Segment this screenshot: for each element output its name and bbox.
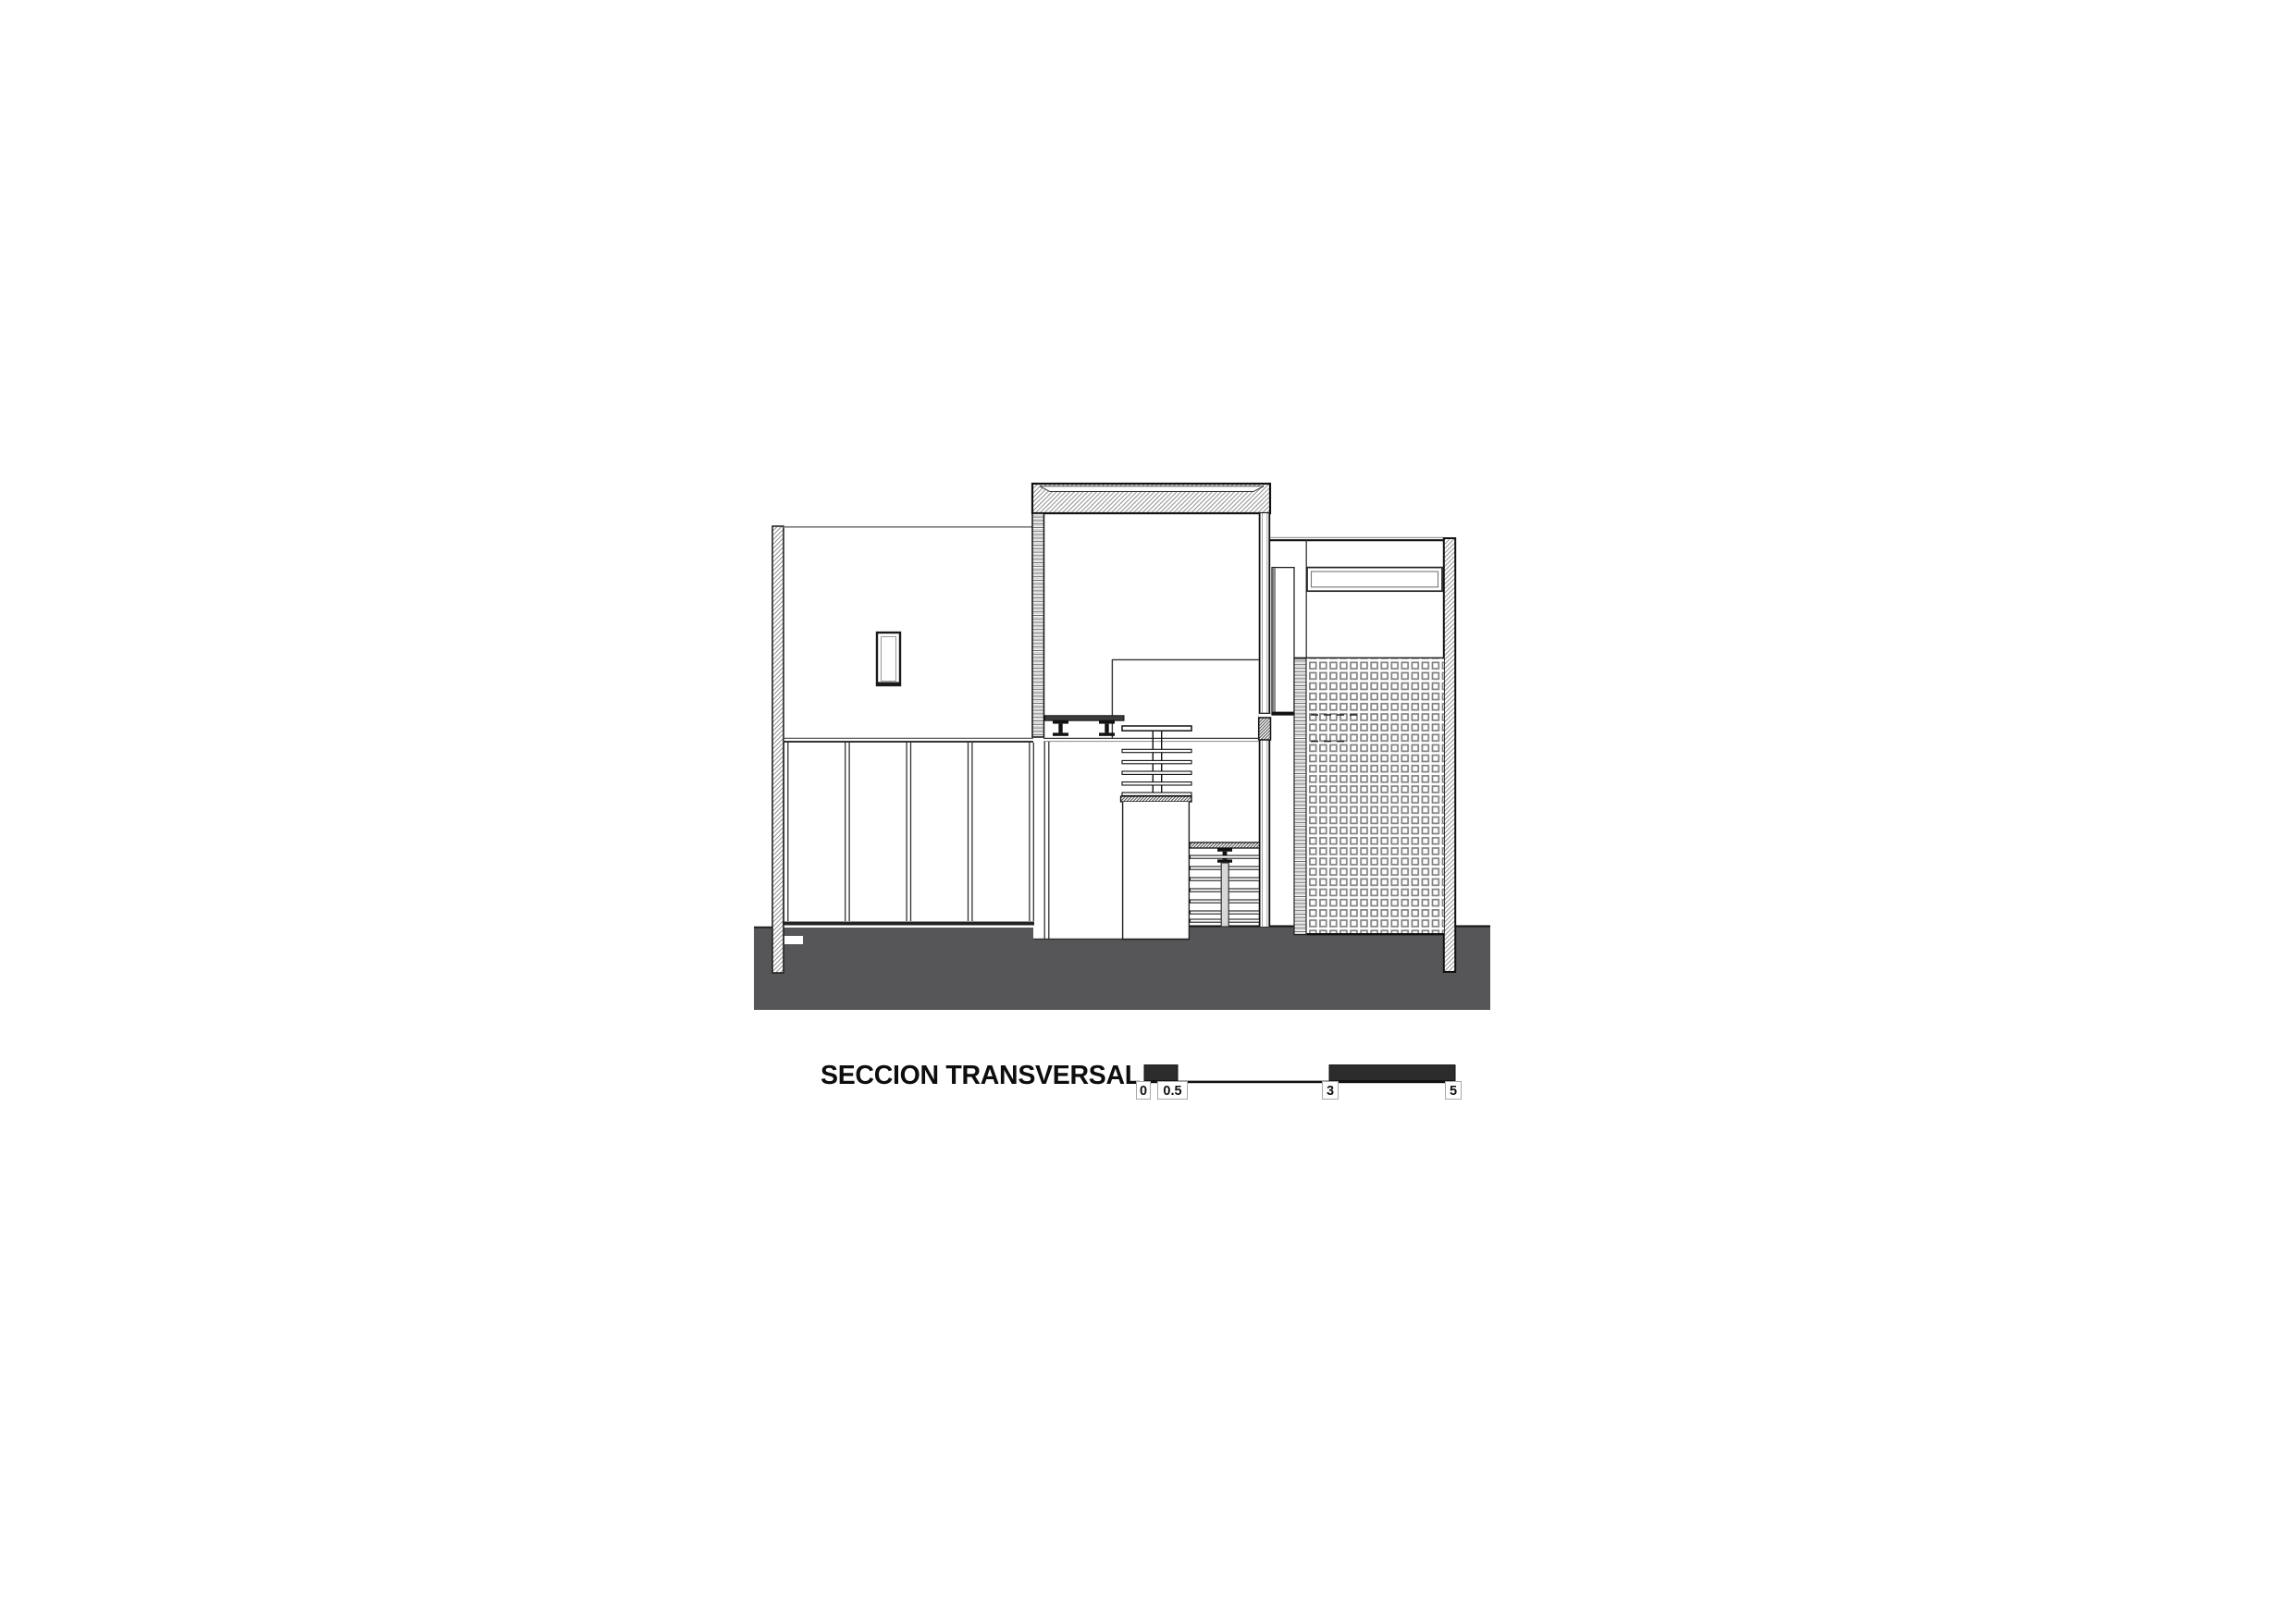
stair-wall	[1123, 802, 1190, 940]
left-building	[783, 527, 1034, 926]
drawing-title: SECCION TRANSVERSAL	[821, 1061, 1141, 1091]
stair-treads	[1122, 749, 1191, 795]
scale-label-0-5: 0.5	[1157, 1081, 1188, 1100]
right-column	[1444, 538, 1455, 972]
section-drawing	[0, 0, 2296, 1623]
lower-left-wall	[1044, 742, 1049, 940]
scale-bar	[1144, 1065, 1455, 1084]
stair-hatched-beam	[1190, 842, 1260, 848]
clerestory-window	[1307, 568, 1442, 592]
wall-hatched-block	[1259, 718, 1271, 740]
stair-hatched-landing	[1121, 796, 1192, 802]
tower-right-wall	[1259, 513, 1271, 927]
left-column	[772, 526, 784, 973]
roof-slab-recess	[1040, 486, 1264, 492]
lower-stair	[1190, 842, 1260, 927]
steel-beam	[1045, 716, 1125, 720]
drawing-canvas: SECCION TRANSVERSAL 0 0.5 3 5	[0, 0, 2296, 1623]
i-beam-icon	[1053, 720, 1068, 736]
block-wall	[1307, 658, 1444, 934]
block-wall-end-strip	[1294, 658, 1306, 935]
left-column-shaft	[772, 526, 784, 973]
scale-label-3: 3	[1322, 1081, 1339, 1100]
scale-bar-segment-3-5	[1329, 1065, 1455, 1081]
right-building	[1270, 537, 1455, 972]
scale-bar-segment-0-05	[1144, 1065, 1178, 1081]
wall-niche-window	[876, 633, 901, 686]
stair-post	[1221, 863, 1228, 927]
narrow-wall-panel	[1272, 568, 1295, 716]
stair-landing-bar	[1122, 726, 1191, 731]
panel-sill	[783, 922, 1034, 926]
scale-label-5: 5	[1445, 1081, 1462, 1100]
tower-left-wall	[1032, 513, 1044, 737]
panel-divider	[784, 743, 1033, 921]
ground-footing-notch	[784, 936, 803, 944]
glazing-panels	[783, 738, 1034, 925]
upper-stair	[1121, 726, 1192, 940]
scale-label-0: 0	[1136, 1081, 1151, 1100]
